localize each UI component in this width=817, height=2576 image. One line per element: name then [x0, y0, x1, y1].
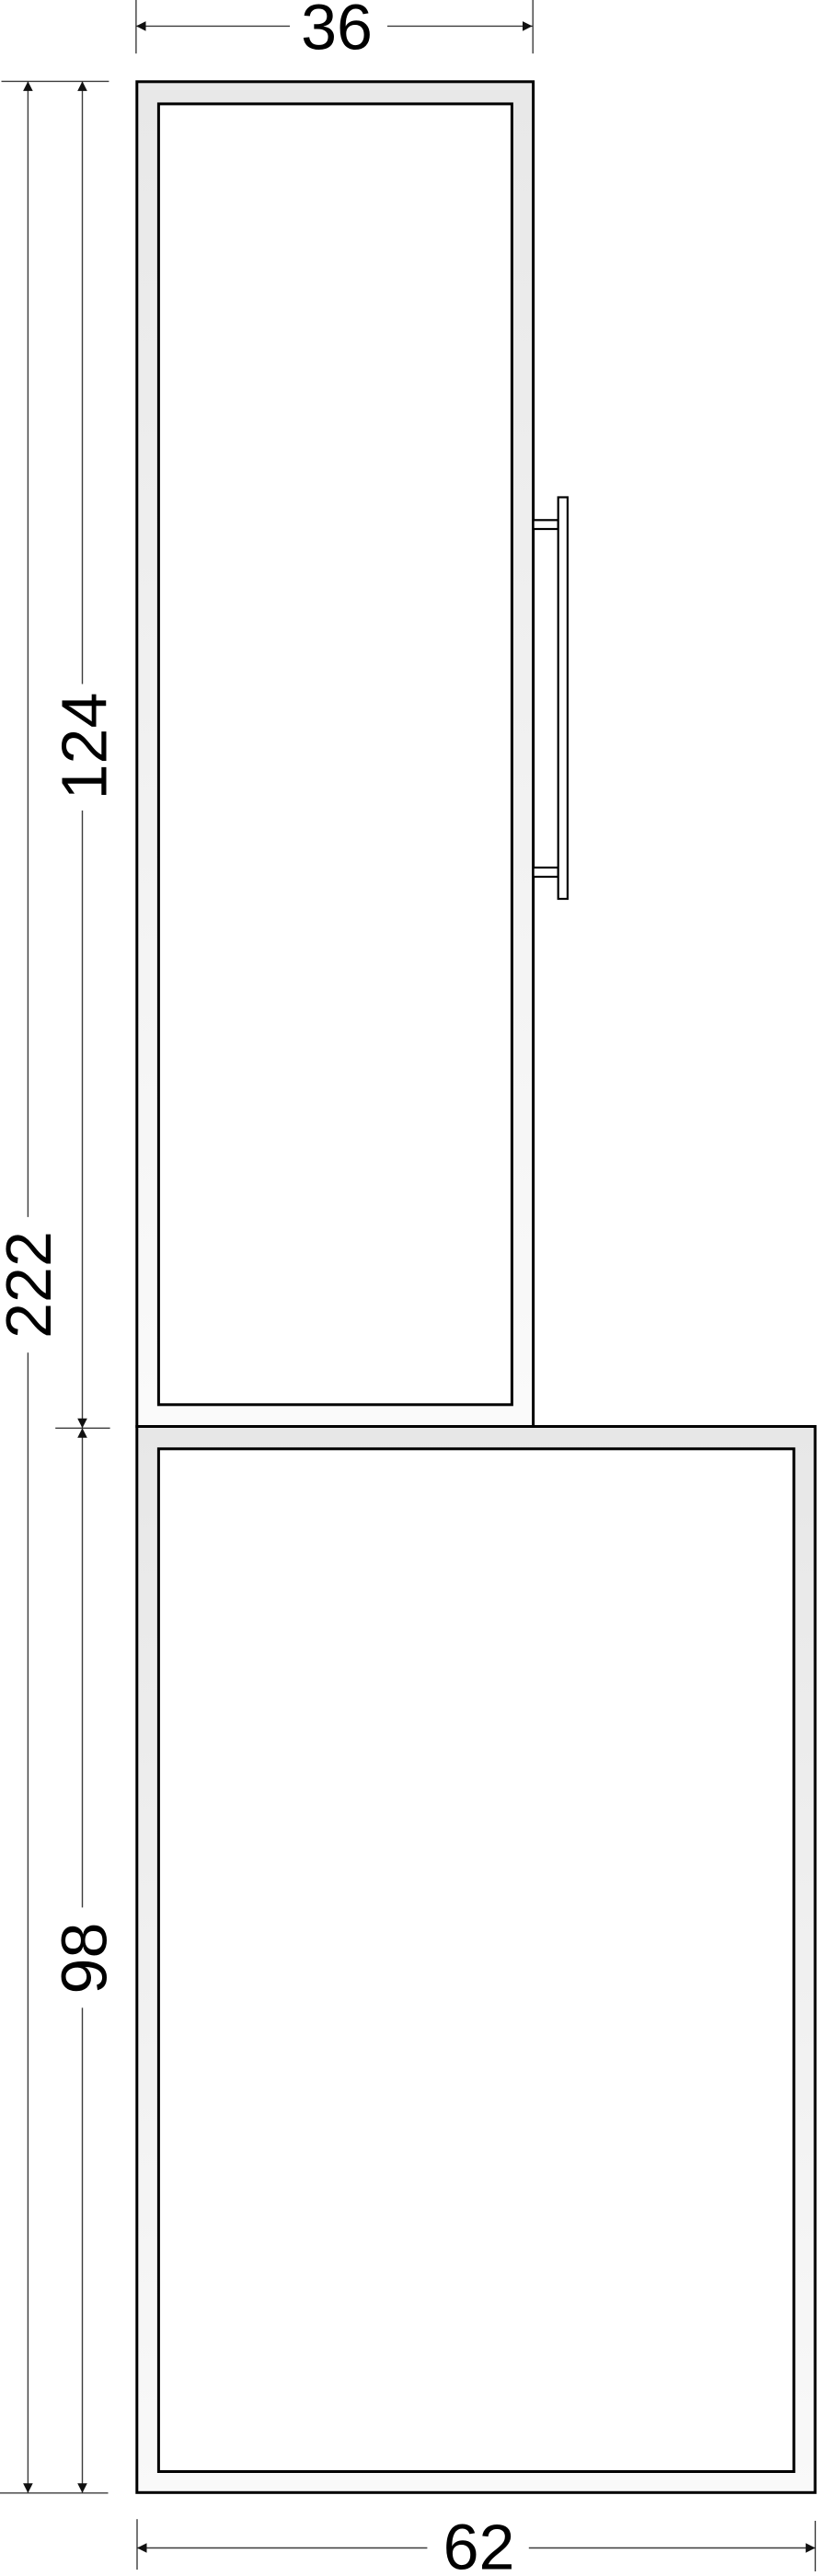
svg-text:222: 222 [0, 1231, 64, 1339]
svg-text:62: 62 [443, 2512, 515, 2576]
svg-text:36: 36 [301, 0, 373, 63]
svg-text:98: 98 [49, 1923, 121, 1995]
svg-text:124: 124 [49, 693, 121, 800]
